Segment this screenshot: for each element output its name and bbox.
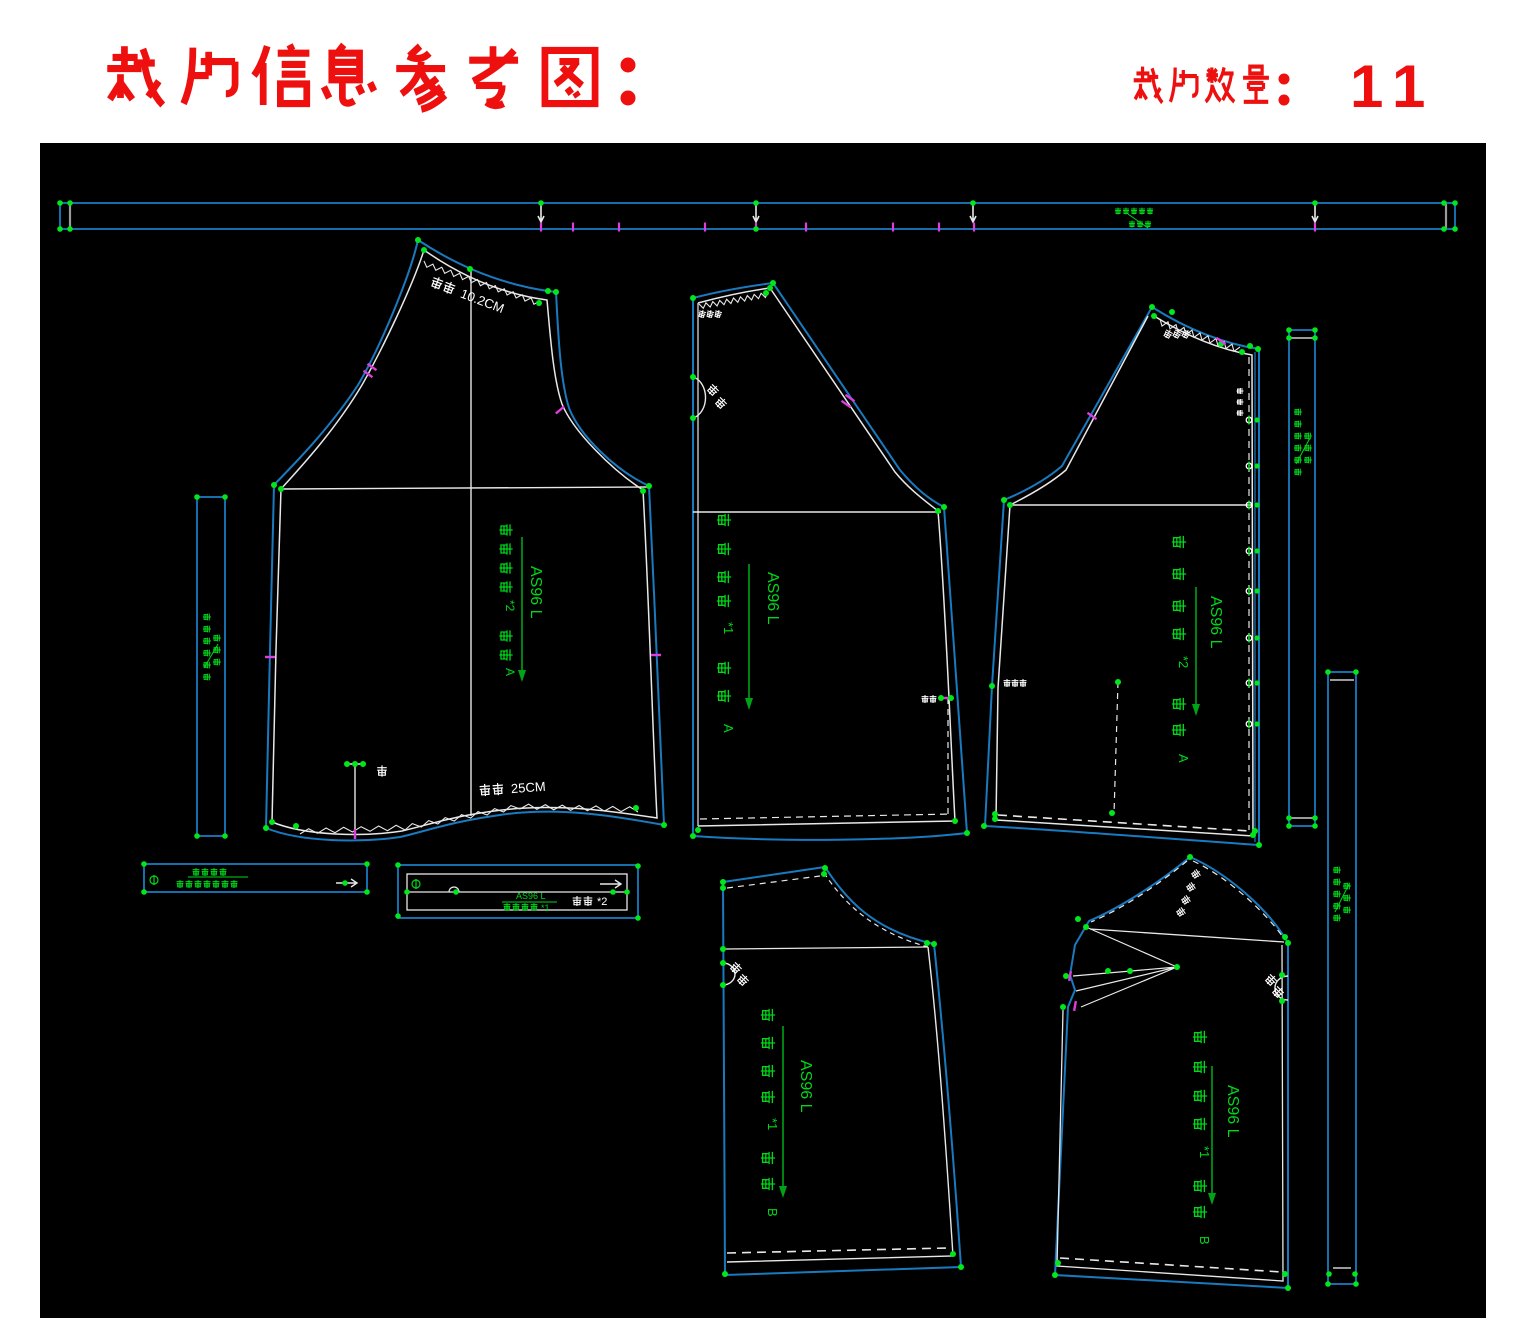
svg-text:*2: *2 xyxy=(1176,656,1191,668)
svg-text:AS96 L: AS96 L xyxy=(1207,596,1224,649)
svg-text:25CM: 25CM xyxy=(510,779,546,796)
svg-text:A: A xyxy=(721,724,736,733)
svg-text:*1: *1 xyxy=(765,1118,780,1130)
svg-text:*1: *1 xyxy=(1197,1146,1212,1158)
svg-text:A: A xyxy=(503,668,517,676)
svg-text:*2: *2 xyxy=(503,600,517,612)
svg-text:B: B xyxy=(1197,1236,1212,1245)
svg-text:*2: *2 xyxy=(597,896,607,908)
svg-text:AS96 L: AS96 L xyxy=(1224,1085,1241,1138)
svg-text:*1: *1 xyxy=(541,903,550,913)
svg-text:AS96 L: AS96 L xyxy=(516,891,546,901)
svg-text:AS96 L: AS96 L xyxy=(797,1060,814,1113)
svg-text:*1: *1 xyxy=(721,622,736,634)
svg-text:B: B xyxy=(765,1208,780,1217)
svg-text:11: 11 xyxy=(1350,53,1437,120)
svg-text:AS96 L: AS96 L xyxy=(764,572,781,625)
svg-text:AS96 L: AS96 L xyxy=(527,566,544,619)
svg-text:A: A xyxy=(1176,754,1191,763)
